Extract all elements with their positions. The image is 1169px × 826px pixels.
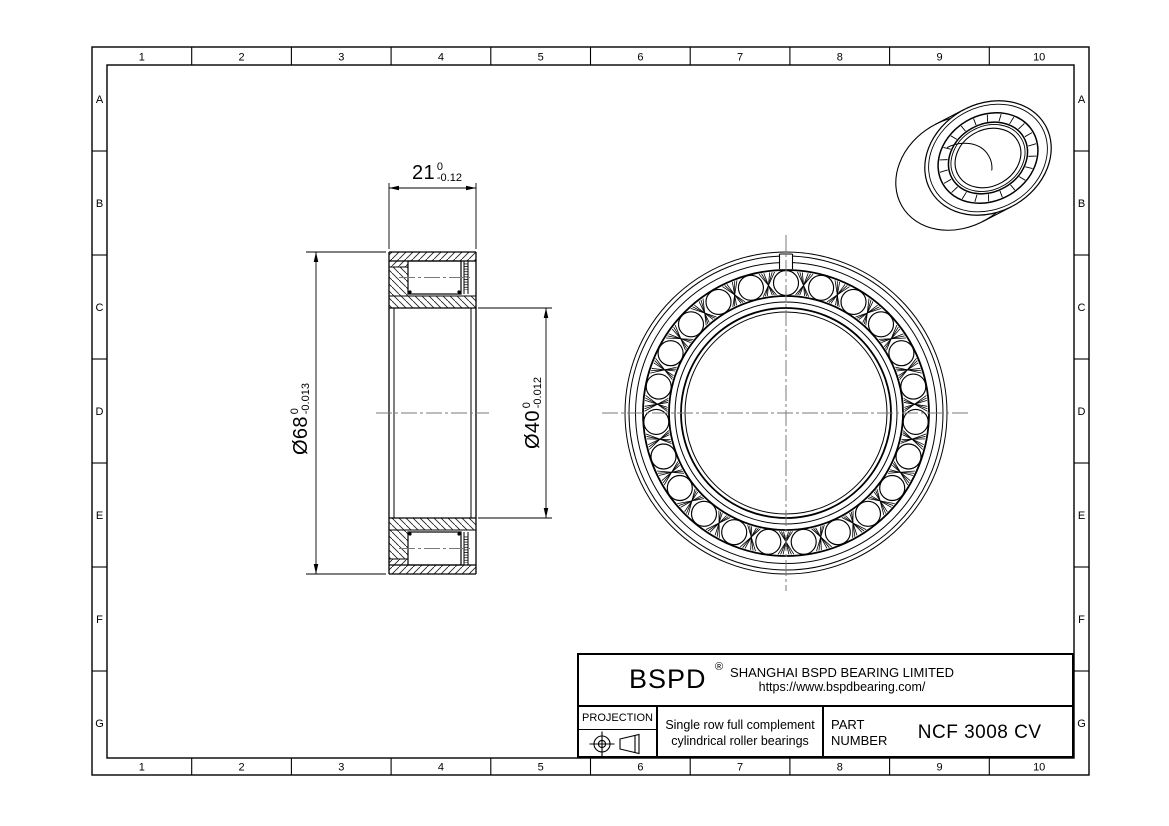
- part-description-line1: Single row full complement: [665, 717, 814, 733]
- registered-trademark-icon: ®: [715, 661, 723, 673]
- title-block-header-row: BSPD ® SHANGHAI BSPD BEARING LIMITED htt…: [579, 655, 1072, 707]
- title-block: BSPD ® SHANGHAI BSPD BEARING LIMITED htt…: [577, 653, 1074, 758]
- grid-column-label: 4: [438, 762, 444, 774]
- grid-column-label: 2: [239, 52, 245, 64]
- grid-column-label: 5: [538, 762, 544, 774]
- part-description-line2: cylindrical roller bearings: [671, 733, 809, 749]
- projection-cell: PROJECTION: [579, 707, 658, 758]
- company-name: SHANGHAI BSPD BEARING LIMITED: [729, 665, 955, 680]
- grid-row-label: A: [96, 94, 104, 106]
- grid-row-label: A: [1078, 94, 1086, 106]
- part-description: Single row full complement cylindrical r…: [658, 707, 824, 758]
- grid-column-label: 10: [1033, 52, 1045, 64]
- grid-column-label: 8: [837, 52, 843, 64]
- dimension-bore-diameter-label: Ø40 0 -0.012: [516, 363, 550, 463]
- grid-column-label: 1: [139, 52, 145, 64]
- dimension-width-tolerance: 0 -0.12: [437, 162, 462, 184]
- company-website: https://www.bspdbearing.com/: [729, 680, 955, 695]
- grid-column-label: 9: [936, 52, 942, 64]
- company-info: SHANGHAI BSPD BEARING LIMITED https://ww…: [729, 665, 955, 695]
- part-number-cell: PART NUMBER NCF 3008 CV: [824, 707, 1072, 758]
- dimension-width-value: 21: [412, 162, 435, 185]
- grid-row-label: G: [1077, 718, 1086, 730]
- grid-column-label: 2: [239, 762, 245, 774]
- dimension-bore-diameter-tolerance: 0 -0.012: [522, 377, 544, 408]
- grid-row-label: C: [96, 302, 104, 314]
- grid-column-label: 4: [438, 52, 444, 64]
- projection-symbol-svg: [587, 731, 649, 757]
- grid-row-label: B: [96, 198, 103, 210]
- drawing-sheet: 1122334455667788991010AABBCCDDEEFFGG 21 …: [0, 0, 1169, 826]
- grid-column-label: 8: [837, 762, 843, 774]
- dimension-outer-diameter-value: Ø68: [290, 416, 313, 455]
- brand-logo: BSPD: [629, 664, 707, 695]
- front-view: [602, 235, 968, 591]
- dimension-outer-diameter-tolerance: 0 -0.013: [290, 383, 312, 414]
- first-angle-projection-symbol: [579, 730, 656, 758]
- grid-row-label: C: [1078, 302, 1086, 314]
- grid-row-label: F: [1078, 614, 1085, 626]
- part-number-label: PART NUMBER: [831, 717, 887, 749]
- grid-column-label: 6: [637, 52, 643, 64]
- grid-column-label: 5: [538, 52, 544, 64]
- grid-column-label: 9: [936, 762, 942, 774]
- grid-row-label: D: [96, 406, 104, 418]
- grid-row-label: G: [95, 718, 104, 730]
- cross-section-view: [376, 252, 489, 574]
- grid-column-label: 10: [1033, 762, 1045, 774]
- title-block-detail-row: PROJECTION Single row: [579, 707, 1072, 758]
- grid-column-label: 6: [637, 762, 643, 774]
- dimension-width-label: 21 0 -0.12: [394, 158, 480, 188]
- grid-column-label: 1: [139, 762, 145, 774]
- projection-label: PROJECTION: [579, 707, 656, 730]
- part-number-value: NCF 3008 CV: [887, 722, 1072, 744]
- grid-row-label: E: [96, 510, 103, 522]
- dimension-bore-diameter-value: Ø40: [522, 410, 545, 449]
- dimension-outer-diameter-label: Ø68 0 -0.013: [284, 369, 318, 469]
- grid-row-label: D: [1078, 406, 1086, 418]
- grid-row-label: F: [96, 614, 103, 626]
- grid-column-label: 3: [338, 52, 344, 64]
- grid-column-label: 7: [737, 762, 743, 774]
- grid-column-label: 3: [338, 762, 344, 774]
- grid-column-label: 7: [737, 52, 743, 64]
- grid-row-label: B: [1078, 198, 1085, 210]
- grid-row-label: E: [1078, 510, 1085, 522]
- iso-view: [875, 78, 1072, 253]
